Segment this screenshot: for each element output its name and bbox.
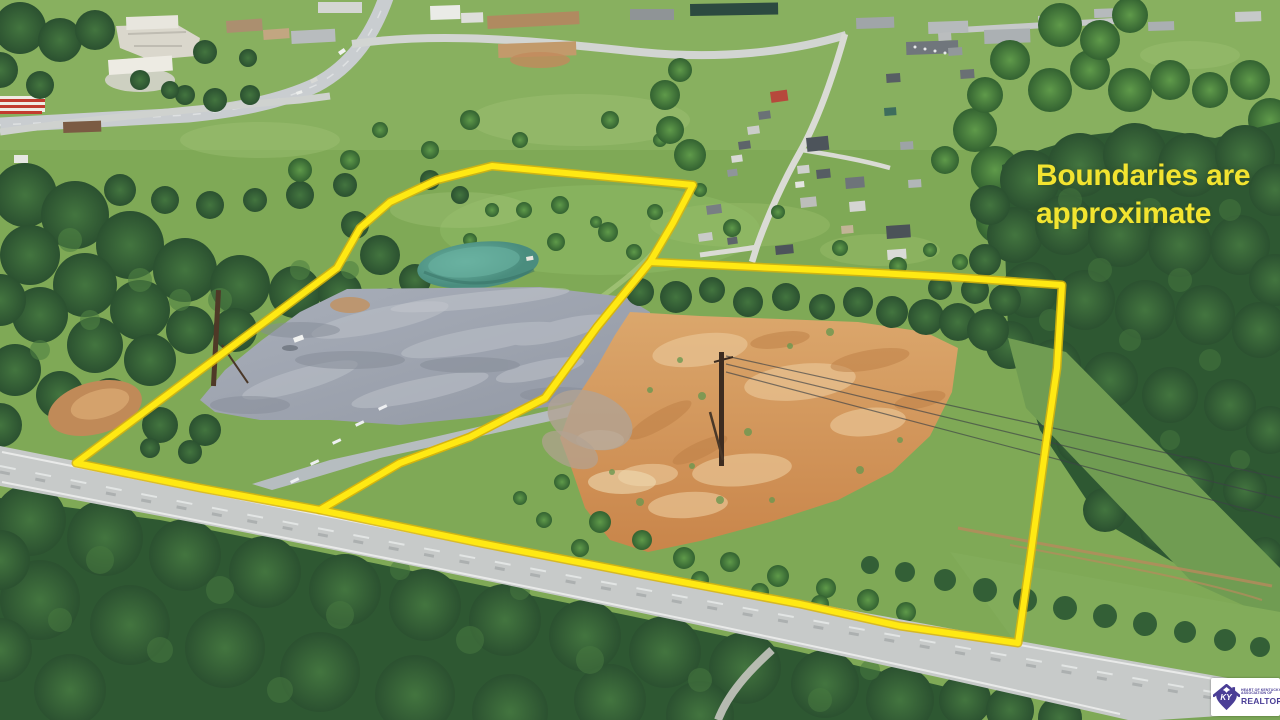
logo-monogram: KY bbox=[1220, 692, 1232, 701]
realtor-logo: KY HEART OF KENTUCKY ASSOCIATION OF REAL… bbox=[1211, 678, 1280, 716]
boundary-disclaimer: Boundaries are approximate bbox=[1036, 157, 1250, 233]
car-shadow bbox=[282, 345, 298, 351]
aerial-photo: Boundaries are approximate KY HEART OF K… bbox=[0, 0, 1280, 720]
logo-realtors-label: REALTORS bbox=[1241, 696, 1280, 706]
disclaimer-line-1: Boundaries are bbox=[1036, 157, 1250, 195]
brown-house bbox=[63, 121, 101, 133]
disclaimer-line-2: approximate bbox=[1036, 195, 1250, 233]
house-heart-icon: KY bbox=[1213, 684, 1240, 711]
aerial-photo-canvas bbox=[0, 0, 1280, 720]
logo-text: HEART OF KENTUCKY ASSOCIATION OF REALTOR… bbox=[1241, 689, 1280, 706]
